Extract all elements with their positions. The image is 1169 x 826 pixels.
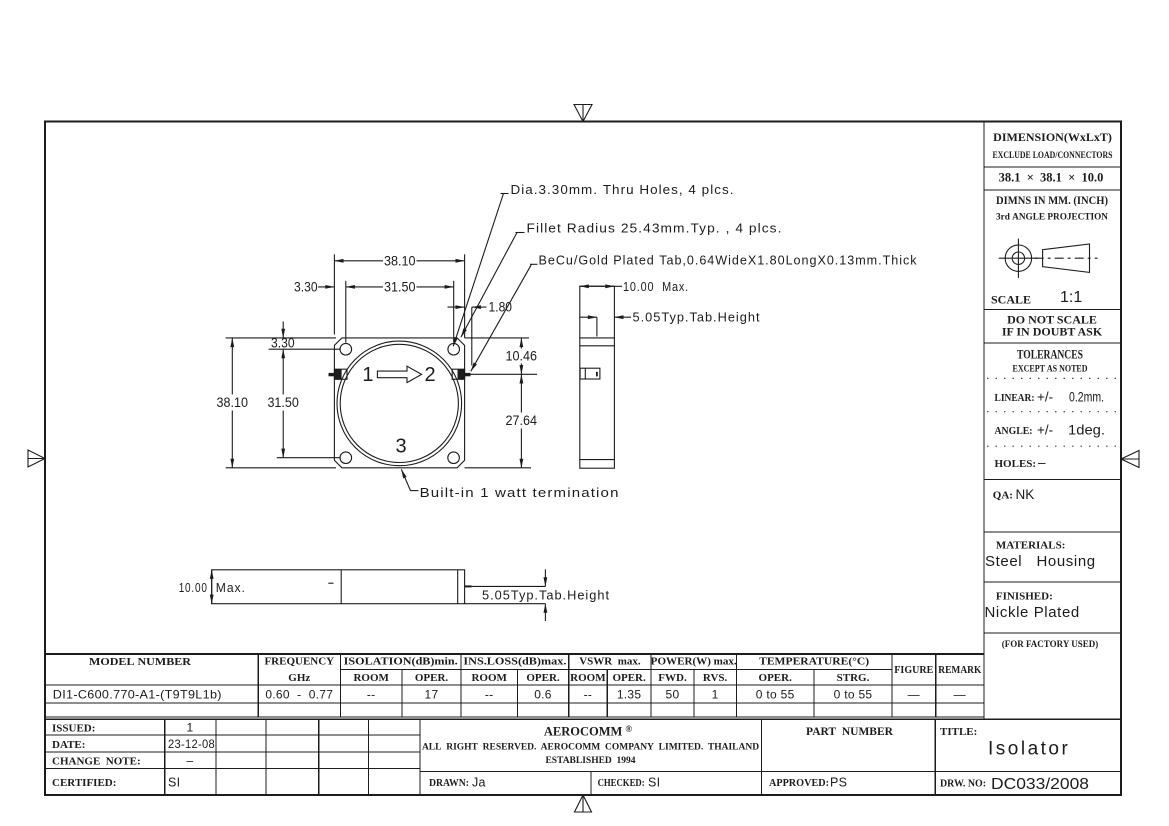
svg-text:DIMNS IN MM. (INCH): DIMNS IN MM. (INCH) bbox=[996, 193, 1108, 207]
svg-text:ROOM: ROOM bbox=[570, 672, 606, 684]
svg-text:SI: SI bbox=[648, 776, 660, 790]
svg-text:10.46: 10.46 bbox=[506, 348, 538, 363]
svg-text:MATERIALS:: MATERIALS: bbox=[996, 540, 1065, 552]
svg-text:OPER.: OPER. bbox=[415, 672, 449, 684]
svg-text:DIMENSION(WxLxT): DIMENSION(WxLxT) bbox=[993, 130, 1112, 144]
svg-text:AEROCOMM ®: AEROCOMM ® bbox=[544, 724, 633, 739]
svg-text:Fillet Radius 25.43mm.Typ. , 4: Fillet Radius 25.43mm.Typ. , 4 plcs. bbox=[527, 221, 783, 236]
svg-text:ISSUED:: ISSUED: bbox=[52, 722, 95, 734]
svg-text:EXCLUDE LOAD/CONNECTORS: EXCLUDE LOAD/CONNECTORS bbox=[993, 150, 1113, 160]
svg-text:LINEAR:: LINEAR: bbox=[995, 392, 1035, 404]
svg-text:OPER.: OPER. bbox=[526, 672, 560, 684]
svg-text:ISOLATION(dB)min.: ISOLATION(dB)min. bbox=[344, 656, 458, 668]
svg-text:3: 3 bbox=[395, 436, 407, 458]
svg-text:1.35: 1.35 bbox=[617, 688, 642, 702]
svg-text:ESTABLISHED 1994: ESTABLISHED 1994 bbox=[545, 756, 635, 766]
svg-text:DI1-C600.770-A1-(T9T9L1b): DI1-C600.770-A1-(T9T9L1b) bbox=[53, 688, 222, 702]
svg-text:(FOR FACTORY USED): (FOR FACTORY USED) bbox=[1002, 639, 1099, 649]
svg-text:PART NUMBER: PART NUMBER bbox=[806, 726, 894, 738]
svg-text:NK: NK bbox=[1016, 487, 1035, 502]
svg-text:ROOM: ROOM bbox=[353, 672, 389, 684]
svg-text:ANGLE:: ANGLE: bbox=[995, 425, 1033, 437]
svg-text:REMARK: REMARK bbox=[938, 664, 981, 676]
svg-text:3rd ANGLE PROJECTION: 3rd ANGLE PROJECTION bbox=[996, 213, 1108, 223]
svg-text:OPER.: OPER. bbox=[612, 672, 646, 684]
svg-text:5.05Typ.Tab.Height: 5.05Typ.Tab.Height bbox=[482, 588, 610, 603]
svg-text:VSWR max.: VSWR max. bbox=[579, 656, 641, 668]
svg-text:FREQUENCY: FREQUENCY bbox=[264, 656, 334, 668]
svg-text:10.00: 10.00 bbox=[179, 580, 208, 595]
svg-text:+/-: +/- bbox=[1037, 423, 1053, 438]
svg-text:TEMPERATURE(°C): TEMPERATURE(°C) bbox=[759, 656, 869, 668]
svg-text:APPROVED:: APPROVED: bbox=[769, 777, 829, 789]
svg-text:50: 50 bbox=[666, 688, 680, 702]
svg-text:DC033/2008: DC033/2008 bbox=[991, 776, 1089, 793]
svg-text:3.30: 3.30 bbox=[271, 336, 295, 351]
svg-text:3.30: 3.30 bbox=[294, 280, 318, 295]
svg-text:EXCEPT AS NOTED: EXCEPT AS NOTED bbox=[1013, 364, 1088, 374]
svg-text:CHANGE NOTE:: CHANGE NOTE: bbox=[52, 755, 141, 767]
svg-text:0 to 55: 0 to 55 bbox=[756, 688, 795, 702]
svg-text:PS: PS bbox=[830, 775, 847, 789]
svg-text:23-12-08: 23-12-08 bbox=[168, 737, 215, 751]
svg-text:—: — bbox=[908, 688, 920, 702]
svg-text:TOLERANCES: TOLERANCES bbox=[1017, 348, 1083, 362]
svg-text:0.60 - 0.77: 0.60 - 0.77 bbox=[265, 688, 333, 702]
svg-text:–: – bbox=[1038, 455, 1046, 470]
svg-text:Nickle Plated: Nickle Plated bbox=[985, 604, 1080, 621]
svg-text:IF IN DOUBT ASK: IF IN DOUBT ASK bbox=[1002, 325, 1103, 339]
svg-text:GHz: GHz bbox=[288, 672, 310, 684]
svg-text:ROOM: ROOM bbox=[471, 672, 507, 684]
svg-text:Isolator: Isolator bbox=[988, 739, 1070, 760]
svg-text:31.50: 31.50 bbox=[267, 395, 299, 410]
svg-text:HOLES:: HOLES: bbox=[995, 458, 1037, 470]
svg-text:17: 17 bbox=[425, 688, 439, 702]
svg-text:Ja: Ja bbox=[472, 776, 486, 790]
svg-text:0.2mm.: 0.2mm. bbox=[1069, 390, 1104, 405]
svg-text:Steel Housing: Steel Housing bbox=[985, 553, 1096, 570]
svg-text:DATE:: DATE: bbox=[52, 739, 85, 751]
svg-text:Max.: Max. bbox=[216, 580, 246, 595]
svg-text:1: 1 bbox=[362, 364, 374, 386]
svg-text:ALL RIGHT RESERVED. AEROCOM: ALL RIGHT RESERVED. AEROCOMM COMPANY LIM… bbox=[422, 743, 759, 753]
svg-text:OPER.: OPER. bbox=[759, 672, 793, 684]
svg-text:TITLE:: TITLE: bbox=[940, 726, 977, 738]
svg-text:Built-in 1 watt termination: Built-in 1 watt termination bbox=[420, 485, 620, 500]
svg-text:+/-: +/- bbox=[1037, 390, 1053, 405]
svg-text:38.10: 38.10 bbox=[384, 254, 416, 269]
svg-text:STRG.: STRG. bbox=[837, 672, 870, 684]
svg-text:FWD.: FWD. bbox=[658, 672, 687, 684]
svg-text:MODEL NUMBER: MODEL NUMBER bbox=[89, 656, 192, 668]
svg-text:DRW. NO:: DRW. NO: bbox=[940, 778, 986, 790]
svg-text:FIGURE: FIGURE bbox=[894, 664, 933, 676]
svg-text:SCALE: SCALE bbox=[991, 293, 1031, 307]
svg-text:—: — bbox=[954, 688, 966, 702]
svg-text:Dia.3.30mm. Thru Holes, 4 plcs: Dia.3.30mm. Thru Holes, 4 plcs. bbox=[511, 182, 735, 197]
svg-text:1:1: 1:1 bbox=[1060, 289, 1082, 306]
svg-text:1: 1 bbox=[187, 721, 194, 735]
svg-text:2: 2 bbox=[424, 364, 436, 386]
svg-text:31.50: 31.50 bbox=[384, 280, 416, 295]
svg-text:0.6: 0.6 bbox=[534, 688, 552, 702]
svg-text:DRAWN:: DRAWN: bbox=[429, 777, 469, 789]
svg-text:1deg.: 1deg. bbox=[1068, 423, 1105, 438]
svg-text:CHECKED:: CHECKED: bbox=[598, 777, 645, 789]
svg-text:POWER(W) max.: POWER(W) max. bbox=[651, 656, 737, 668]
svg-text:0 to 55: 0 to 55 bbox=[834, 688, 873, 702]
svg-text:SI: SI bbox=[168, 775, 180, 789]
svg-text:5.05Typ.Tab.Height: 5.05Typ.Tab.Height bbox=[633, 310, 761, 325]
svg-text:–: – bbox=[187, 754, 194, 768]
svg-text:RVS.: RVS. bbox=[703, 672, 728, 684]
svg-text:FINISHED:: FINISHED: bbox=[996, 591, 1053, 603]
svg-text:10.00 Max.: 10.00 Max. bbox=[623, 279, 689, 294]
svg-text:QA:: QA: bbox=[993, 490, 1013, 502]
svg-text:--: -- bbox=[485, 688, 494, 702]
svg-text:1.80: 1.80 bbox=[489, 300, 513, 315]
svg-text:--: -- bbox=[584, 688, 593, 702]
svg-text:--: -- bbox=[367, 688, 376, 702]
svg-text:27.64: 27.64 bbox=[506, 413, 538, 428]
svg-text:38.1 × 38.1 × 10.0: 38.1 × 38.1 × 10.0 bbox=[999, 171, 1104, 185]
svg-text:BeCu/Gold Plated Tab,0.64WideX: BeCu/Gold Plated Tab,0.64WideX1.80LongX0… bbox=[539, 253, 918, 268]
svg-text:CERTIFIED:: CERTIFIED: bbox=[52, 777, 116, 789]
svg-text:INS.LOSS(dB)max.: INS.LOSS(dB)max. bbox=[463, 656, 566, 668]
svg-text:38.10: 38.10 bbox=[217, 395, 249, 410]
svg-text:1: 1 bbox=[712, 688, 719, 702]
